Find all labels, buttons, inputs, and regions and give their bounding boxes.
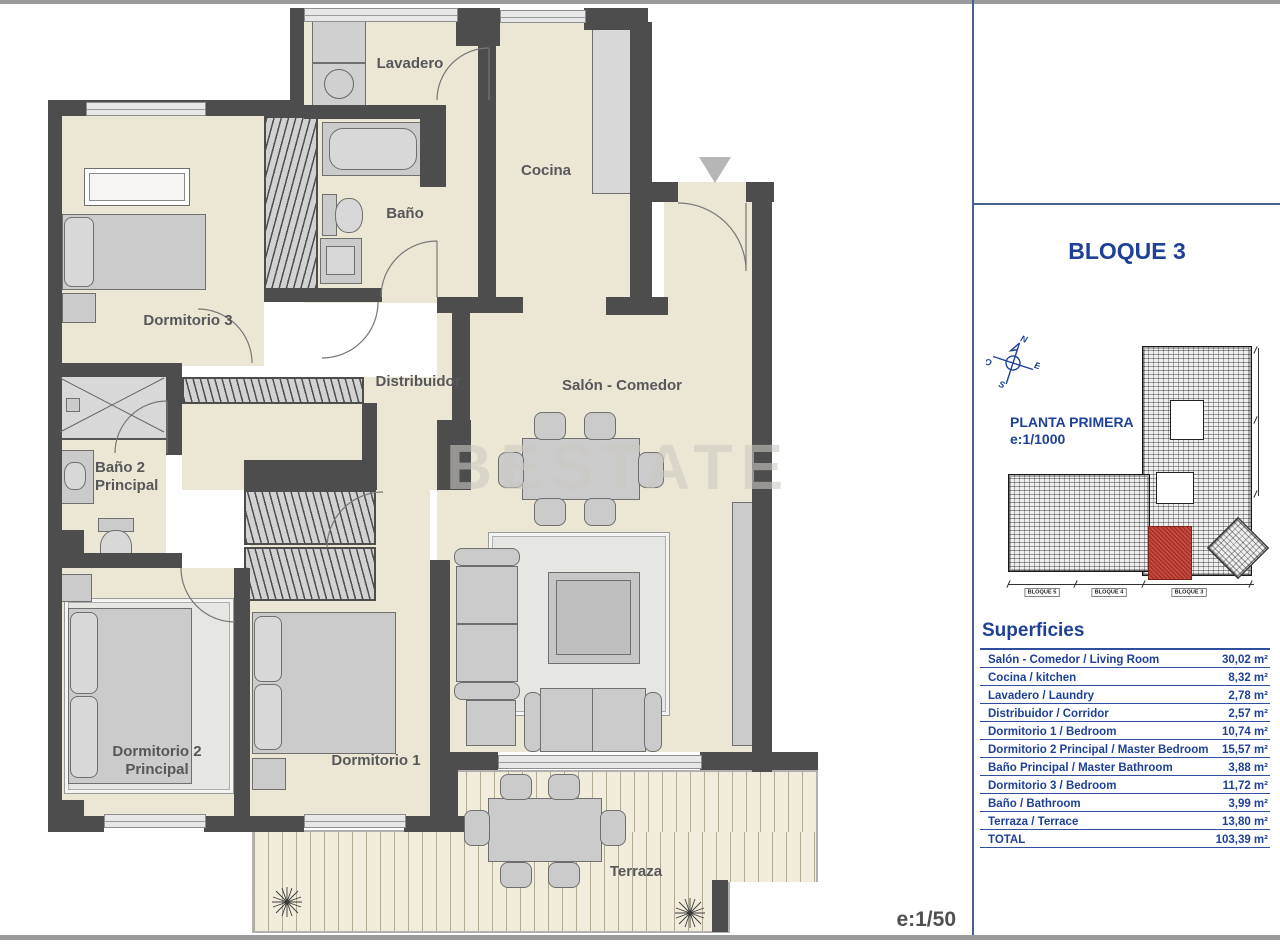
room-label-bano: Baño bbox=[386, 205, 424, 223]
table-row: Dormitorio 1 / Bedroom10,74 m² bbox=[980, 722, 1270, 740]
table-row: Dormitorio 2 Principal / Master Bedroom1… bbox=[980, 740, 1270, 758]
table-row: Salón - Comedor / Living Room30,02 m² bbox=[980, 650, 1270, 668]
table-row: Baño / Bathroom3,99 m² bbox=[980, 794, 1270, 812]
table-row: Baño Principal / Master Bathroom3,88 m² bbox=[980, 758, 1270, 776]
room-label-distribuidor: Distribuidor bbox=[376, 373, 461, 391]
table-row: Lavadero / Laundry2,78 m² bbox=[980, 686, 1270, 704]
room-label-salon: Salón - Comedor bbox=[562, 377, 682, 395]
room-label-dormitorio1: Dormitorio 1 bbox=[331, 752, 420, 770]
block-title: BLOQUE 3 bbox=[974, 238, 1280, 265]
site-block-label: BLOQUE 3 bbox=[1171, 588, 1206, 597]
room-label-dormitorio2: Dormitorio 2Principal bbox=[112, 743, 201, 779]
highlighted-unit bbox=[1148, 526, 1192, 580]
table-row: Cocina / kitchen8,32 m² bbox=[980, 668, 1270, 686]
table-row: Terraza / Terrace13,80 m² bbox=[980, 812, 1270, 830]
site-building bbox=[1008, 474, 1150, 572]
site-block-label: BLOQUE 5 bbox=[1024, 588, 1059, 597]
room-label-terraza: Terraza bbox=[610, 863, 662, 881]
surfaces-table: Salón - Comedor / Living Room30,02 m² Co… bbox=[980, 648, 1270, 848]
floorplan: Lavadero Cocina Baño Dormitorio 3 Distri… bbox=[0, 0, 973, 945]
room-label-dormitorio3: Dormitorio 3 bbox=[143, 312, 232, 330]
watermark: BESTATE bbox=[446, 430, 791, 504]
room-label-bano2: Baño 2Principal bbox=[95, 459, 158, 495]
table-row: Distribuidor / Corridor2,57 m² bbox=[980, 704, 1270, 722]
svg-text:O: O bbox=[986, 356, 993, 368]
room-label-lavadero: Lavadero bbox=[377, 55, 444, 73]
table-row: Dormitorio 3 / Bedroom11,72 m² bbox=[980, 776, 1270, 794]
terrace-plant-icon bbox=[272, 887, 705, 928]
site-block-label: BLOQUE 4 bbox=[1091, 588, 1126, 597]
table-row-total: TOTAL103,39 m² bbox=[980, 830, 1270, 848]
room-label-cocina: Cocina bbox=[521, 162, 571, 180]
site-plan-thumbnail: BLOQUE 5 BLOQUE 4 BLOQUE 3 bbox=[1002, 344, 1266, 600]
entrance-arrow-icon bbox=[699, 157, 731, 183]
sidebar-horizontal-divider bbox=[972, 203, 1280, 205]
surfaces-title: Superficies bbox=[982, 620, 1084, 642]
